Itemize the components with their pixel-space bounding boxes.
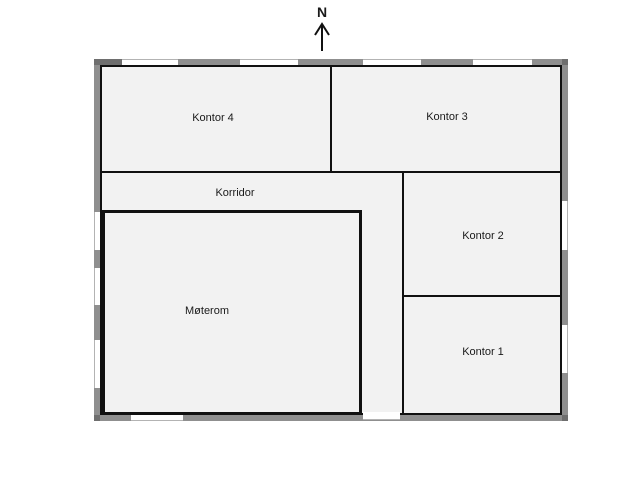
room-label-korridor: Korridor: [215, 187, 254, 199]
window: [240, 59, 298, 65]
wall-corner: [562, 415, 568, 421]
window: [131, 415, 183, 421]
room-label-kontor1: Kontor 1: [462, 346, 504, 358]
window: [94, 340, 100, 388]
window: [562, 325, 568, 373]
room-moterom: [102, 210, 362, 415]
window: [473, 59, 532, 65]
wall-segment: [94, 59, 122, 65]
window: [122, 59, 178, 65]
window: [562, 201, 568, 250]
room-label-kontor4: Kontor 4: [192, 112, 234, 124]
north-label: N: [300, 4, 344, 20]
room-label-kontor2: Kontor 2: [462, 230, 504, 242]
window: [363, 59, 421, 65]
wall-corner: [94, 415, 100, 421]
wall-corridor-east: [402, 173, 404, 415]
north-indicator: N: [300, 4, 344, 58]
door-opening: [363, 412, 400, 420]
window: [94, 268, 100, 305]
room-label-moterom: Møterom: [185, 305, 229, 317]
wall-corner: [562, 59, 568, 65]
north-arrow-icon: [311, 20, 333, 52]
wall-corridor-north: [100, 171, 562, 173]
wall-kontor4-kontor3: [330, 65, 332, 173]
window: [94, 212, 100, 250]
wall-kontor2-kontor1: [404, 295, 562, 297]
room-label-kontor3: Kontor 3: [426, 111, 468, 123]
